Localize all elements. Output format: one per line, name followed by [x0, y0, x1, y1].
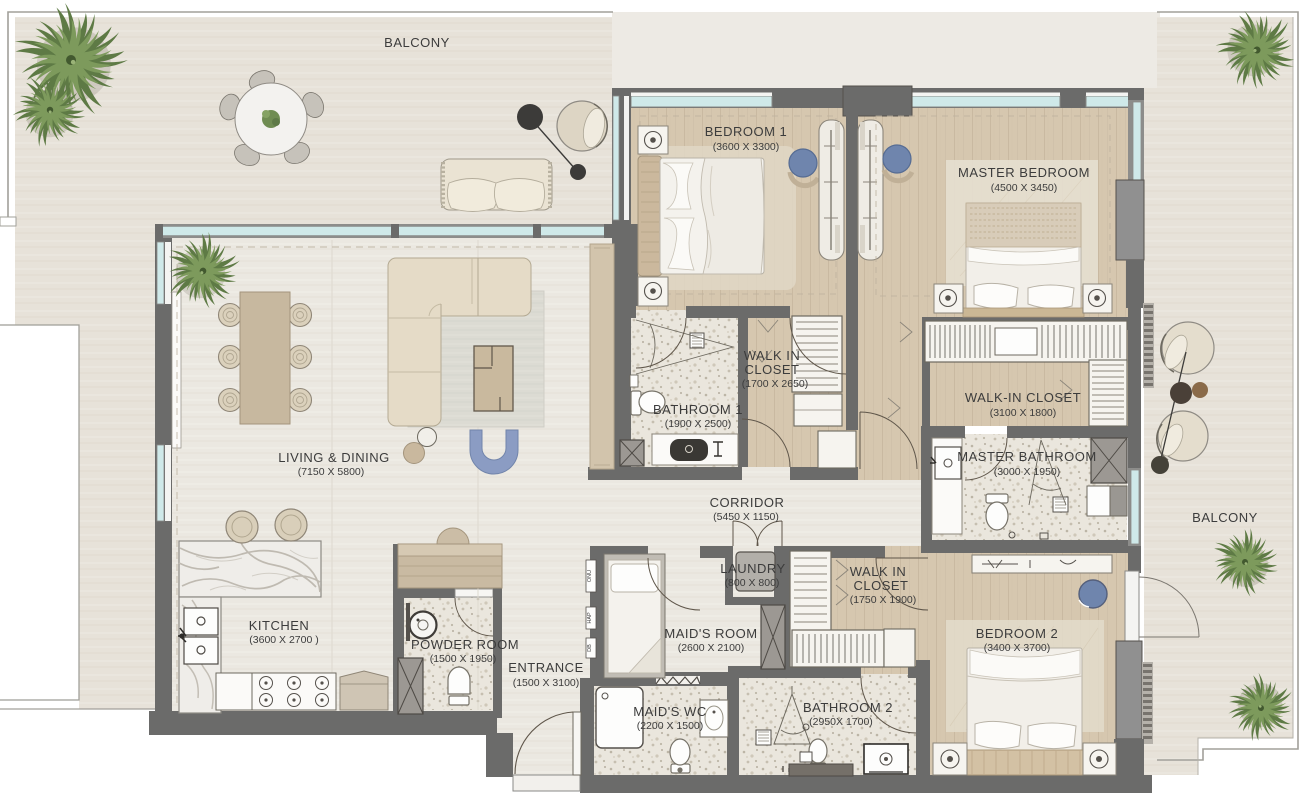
svg-text:LAUNDRY: LAUNDRY [720, 561, 785, 576]
svg-text:(7150 X 5800): (7150 X 5800) [298, 466, 365, 478]
svg-text:BATHROOM 1: BATHROOM 1 [653, 402, 743, 417]
svg-text:(3600 X 3300): (3600 X 3300) [713, 141, 780, 153]
svg-text:(3100 X 1800): (3100 X 1800) [990, 407, 1057, 419]
svg-text:MAID'S WC: MAID'S WC [633, 704, 706, 719]
svg-text:(2200 X 1500): (2200 X 1500) [637, 720, 704, 732]
svg-text:(1900 X 2500): (1900 X 2500) [665, 418, 732, 430]
svg-text:CLOSET: CLOSET [853, 578, 908, 593]
svg-text:(1500 X 3100): (1500 X 3100) [513, 677, 580, 689]
svg-text:WALK-IN CLOSET: WALK-IN CLOSET [965, 390, 1081, 405]
svg-text:(2600 X 2100): (2600 X 2100) [678, 642, 745, 654]
svg-text:ONU: ONU [587, 570, 593, 582]
svg-text:WALK IN: WALK IN [744, 348, 800, 363]
svg-text:CLOSET: CLOSET [744, 362, 799, 377]
svg-text:(5450 X 1150): (5450 X 1150) [713, 511, 779, 523]
svg-text:HAP: HAP [587, 612, 593, 624]
svg-text:(1500 X 1950): (1500 X 1950) [430, 653, 497, 665]
svg-text:(1700 X 2650): (1700 X 2650) [742, 378, 809, 390]
svg-text:ENTRANCE: ENTRANCE [508, 660, 584, 675]
svg-text:MASTER BATHROOM: MASTER BATHROOM [957, 449, 1096, 464]
svg-text:KITCHEN: KITCHEN [249, 618, 310, 633]
svg-text:BATHROOM 2: BATHROOM 2 [803, 700, 893, 715]
svg-text:BEDROOM 2: BEDROOM 2 [976, 626, 1059, 641]
svg-text:(3000 X 1950): (3000 X 1950) [994, 466, 1061, 478]
svg-text:BALCONY: BALCONY [1192, 510, 1258, 525]
svg-text:BEDROOM 1: BEDROOM 1 [705, 124, 788, 139]
svg-text:(1750 X 1900): (1750 X 1900) [850, 594, 917, 606]
svg-text:(800 X 800): (800 X 800) [725, 577, 780, 589]
svg-text:DB: DB [587, 644, 593, 652]
svg-text:MAID'S ROOM: MAID'S ROOM [664, 626, 757, 641]
svg-text:(4500 X 3450): (4500 X 3450) [991, 182, 1058, 194]
svg-text:WALK IN: WALK IN [850, 564, 906, 579]
svg-text:(2950X 1700): (2950X 1700) [809, 716, 873, 728]
svg-text:BALCONY: BALCONY [384, 35, 450, 50]
svg-text:(3400 X 3700): (3400 X 3700) [984, 642, 1051, 654]
svg-text:MASTER BEDROOM: MASTER BEDROOM [958, 165, 1090, 180]
svg-text:LIVING & DINING: LIVING & DINING [278, 450, 390, 465]
svg-text:(3600 X 2700 ): (3600 X 2700 ) [249, 634, 318, 646]
svg-text:POWDER ROOM: POWDER ROOM [411, 637, 519, 652]
svg-text:CORRIDOR: CORRIDOR [710, 495, 785, 510]
